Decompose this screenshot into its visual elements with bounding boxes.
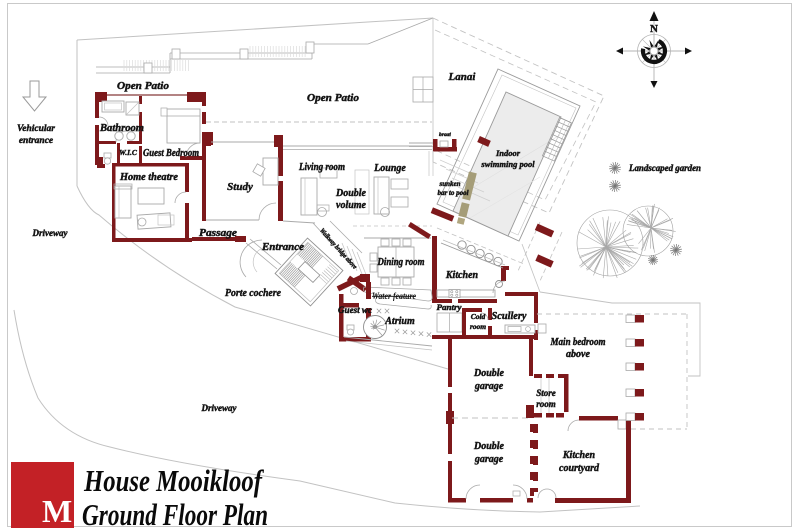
svg-text:room: room [470, 322, 486, 331]
svg-text:Lounge: Lounge [373, 163, 406, 174]
svg-text:Open Patio: Open Patio [117, 81, 169, 92]
svg-text:Lanai: Lanai [448, 71, 477, 83]
svg-text:braai: braai [439, 132, 451, 138]
svg-text:Open Patio: Open Patio [307, 93, 359, 104]
svg-text:Indoor: Indoor [495, 148, 521, 158]
svg-text:Pantry: Pantry [437, 303, 462, 312]
svg-text:Living room: Living room [298, 162, 345, 173]
svg-text:Entrance: Entrance [261, 242, 305, 253]
svg-text:Store: Store [536, 388, 556, 398]
svg-text:Main bedroom: Main bedroom [550, 337, 606, 348]
svg-text:above: above [566, 349, 590, 360]
svg-text:entrance: entrance [19, 136, 54, 146]
svg-text:Study: Study [227, 181, 253, 193]
svg-text:sunken: sunken [438, 180, 460, 188]
svg-text:Porte cochere: Porte cochere [225, 287, 281, 299]
svg-text:Double: Double [473, 441, 505, 452]
svg-text:garage: garage [474, 381, 504, 392]
svg-text:Water feature: Water feature [372, 291, 416, 301]
svg-text:Bathroom: Bathroom [99, 123, 144, 134]
svg-text:Landscaped garden: Landscaped garden [628, 163, 701, 173]
svg-text:garage: garage [474, 454, 504, 465]
svg-text:courtyard: courtyard [559, 463, 600, 474]
svg-text:volume: volume [336, 200, 367, 211]
svg-text:Driveway: Driveway [32, 228, 69, 238]
svg-text:Dining room: Dining room [377, 257, 425, 268]
svg-text:Guest wc: Guest wc [338, 305, 372, 315]
svg-text:Driveway: Driveway [201, 403, 238, 413]
svg-text:swimming pool: swimming pool [480, 159, 535, 169]
svg-text:Double: Double [335, 188, 367, 199]
svg-text:Home theatre: Home theatre [119, 172, 179, 183]
svg-text:M: M [42, 493, 72, 529]
svg-text:Atrium: Atrium [384, 316, 415, 327]
svg-text:Vehicular: Vehicular [17, 124, 55, 134]
svg-text:House Mooikloof: House Mooikloof [83, 463, 264, 498]
svg-text:Cold: Cold [471, 312, 486, 321]
svg-text:Kitchen: Kitchen [562, 450, 596, 461]
svg-text:Scullery: Scullery [492, 311, 528, 322]
svg-text:room: room [536, 399, 556, 409]
svg-text:N: N [650, 23, 658, 35]
svg-text:bar to pool: bar to pool [437, 189, 468, 197]
svg-text:Double: Double [473, 368, 505, 379]
svg-text:W.I.C: W.I.C [119, 148, 138, 157]
svg-text:Passage: Passage [199, 228, 238, 239]
svg-text:Ground Floor Plan: Ground Floor Plan [82, 497, 268, 530]
svg-text:Kitchen: Kitchen [445, 270, 479, 281]
svg-text:Guest Bedroom: Guest Bedroom [143, 148, 199, 159]
